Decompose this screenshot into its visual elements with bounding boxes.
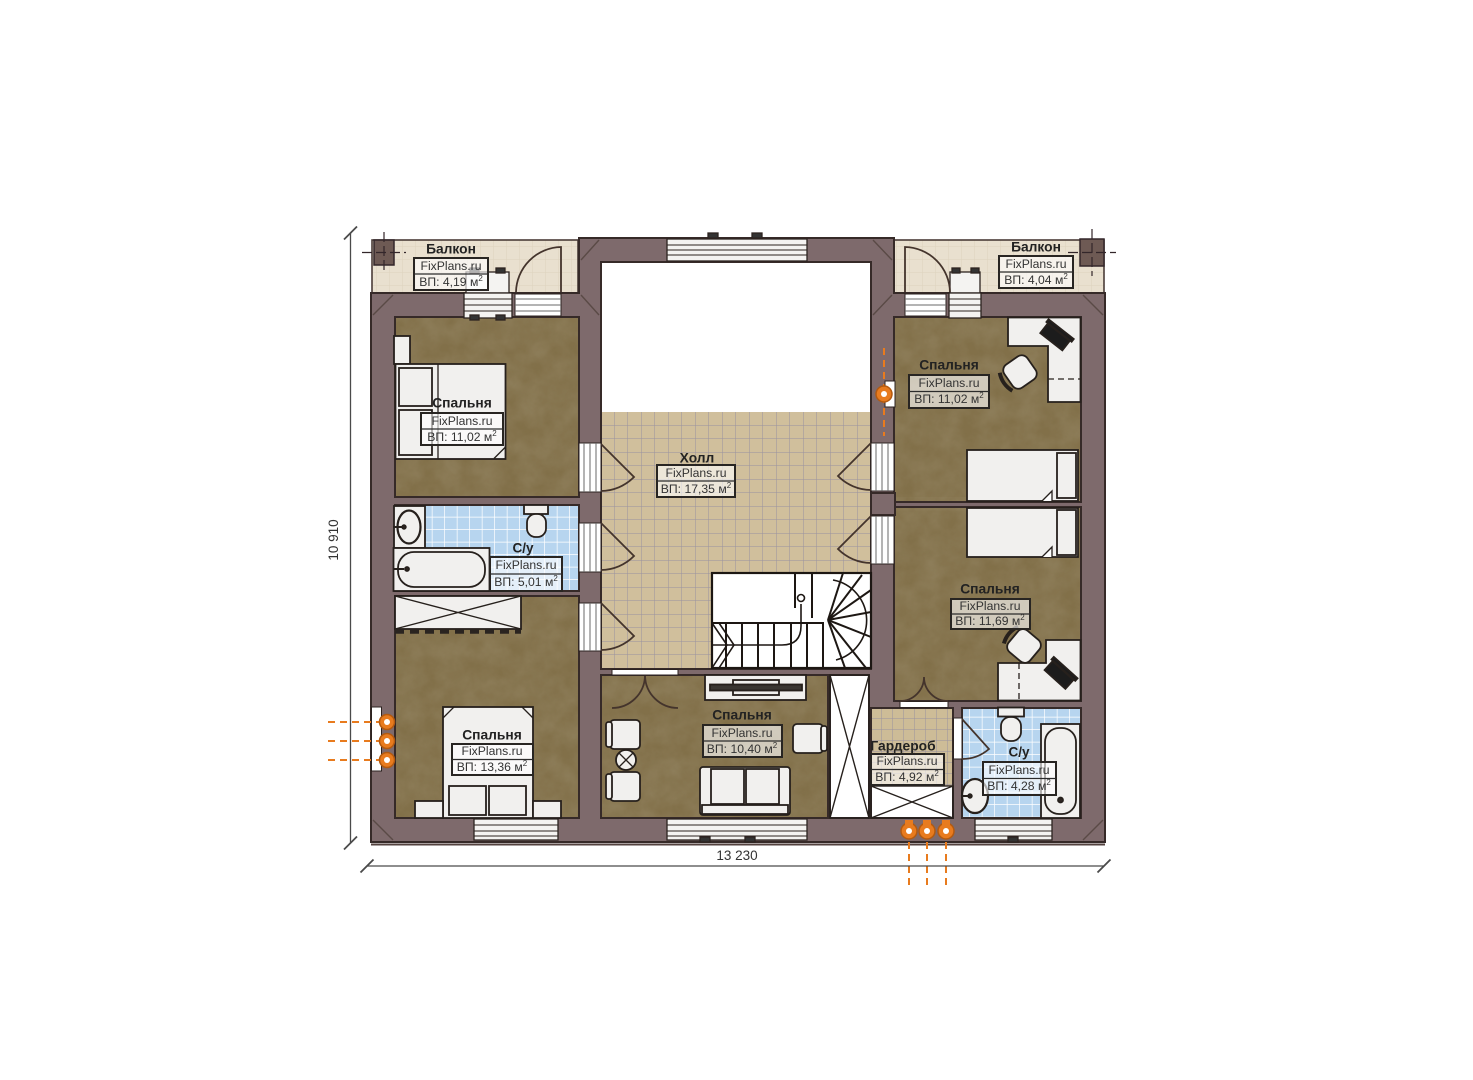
- svg-text:ВП: 11,02 м2: ВП: 11,02 м2: [914, 391, 984, 406]
- svg-text:FixPlans.ru: FixPlans.ru: [877, 754, 938, 768]
- svg-text:ВП: 5,01 м2: ВП: 5,01 м2: [494, 574, 558, 589]
- svg-text:Гардероб: Гардероб: [870, 739, 935, 754]
- svg-text:ВП: 4,04 м2: ВП: 4,04 м2: [1004, 272, 1068, 287]
- svg-text:ВП: 10,40 м2: ВП: 10,40 м2: [707, 741, 778, 756]
- svg-text:FixPlans.ru: FixPlans.ru: [496, 558, 557, 572]
- svg-text:10 910: 10 910: [326, 519, 341, 560]
- svg-text:FixPlans.ru: FixPlans.ru: [960, 599, 1021, 613]
- svg-text:FixPlans.ru: FixPlans.ru: [919, 376, 980, 390]
- svg-text:Спальня: Спальня: [960, 582, 1020, 597]
- svg-text:FixPlans.ru: FixPlans.ru: [432, 414, 493, 428]
- svg-text:Спальня: Спальня: [462, 728, 522, 743]
- svg-text:FixPlans.ru: FixPlans.ru: [421, 259, 482, 273]
- svg-text:ВП: 4,19 м2: ВП: 4,19 м2: [419, 274, 483, 289]
- svg-text:ВП: 11,02 м2: ВП: 11,02 м2: [427, 429, 497, 444]
- svg-text:Спальня: Спальня: [919, 358, 979, 373]
- svg-text:13 230: 13 230: [716, 848, 757, 863]
- svg-text:Спальня: Спальня: [712, 708, 772, 723]
- svg-text:FixPlans.ru: FixPlans.ru: [666, 466, 727, 480]
- svg-text:ВП: 4,28 м2: ВП: 4,28 м2: [987, 778, 1051, 793]
- svg-text:Спальня: Спальня: [432, 396, 492, 411]
- svg-text:Балкон: Балкон: [1011, 240, 1061, 255]
- svg-text:FixPlans.ru: FixPlans.ru: [989, 763, 1050, 777]
- svg-text:С/у: С/у: [1008, 745, 1030, 760]
- svg-text:FixPlans.ru: FixPlans.ru: [712, 726, 773, 740]
- svg-text:ВП: 11,69 м2: ВП: 11,69 м2: [955, 613, 1025, 628]
- svg-text:Холл: Холл: [680, 451, 715, 466]
- svg-text:С/у: С/у: [512, 541, 534, 556]
- svg-text:ВП: 13,36 м2: ВП: 13,36 м2: [457, 759, 528, 774]
- svg-text:FixPlans.ru: FixPlans.ru: [1006, 257, 1067, 271]
- svg-text:Балкон: Балкон: [426, 242, 476, 257]
- svg-text:ВП: 17,35 м2: ВП: 17,35 м2: [661, 481, 732, 496]
- svg-text:ВП: 4,92 м2: ВП: 4,92 м2: [875, 769, 939, 784]
- svg-text:FixPlans.ru: FixPlans.ru: [462, 744, 523, 758]
